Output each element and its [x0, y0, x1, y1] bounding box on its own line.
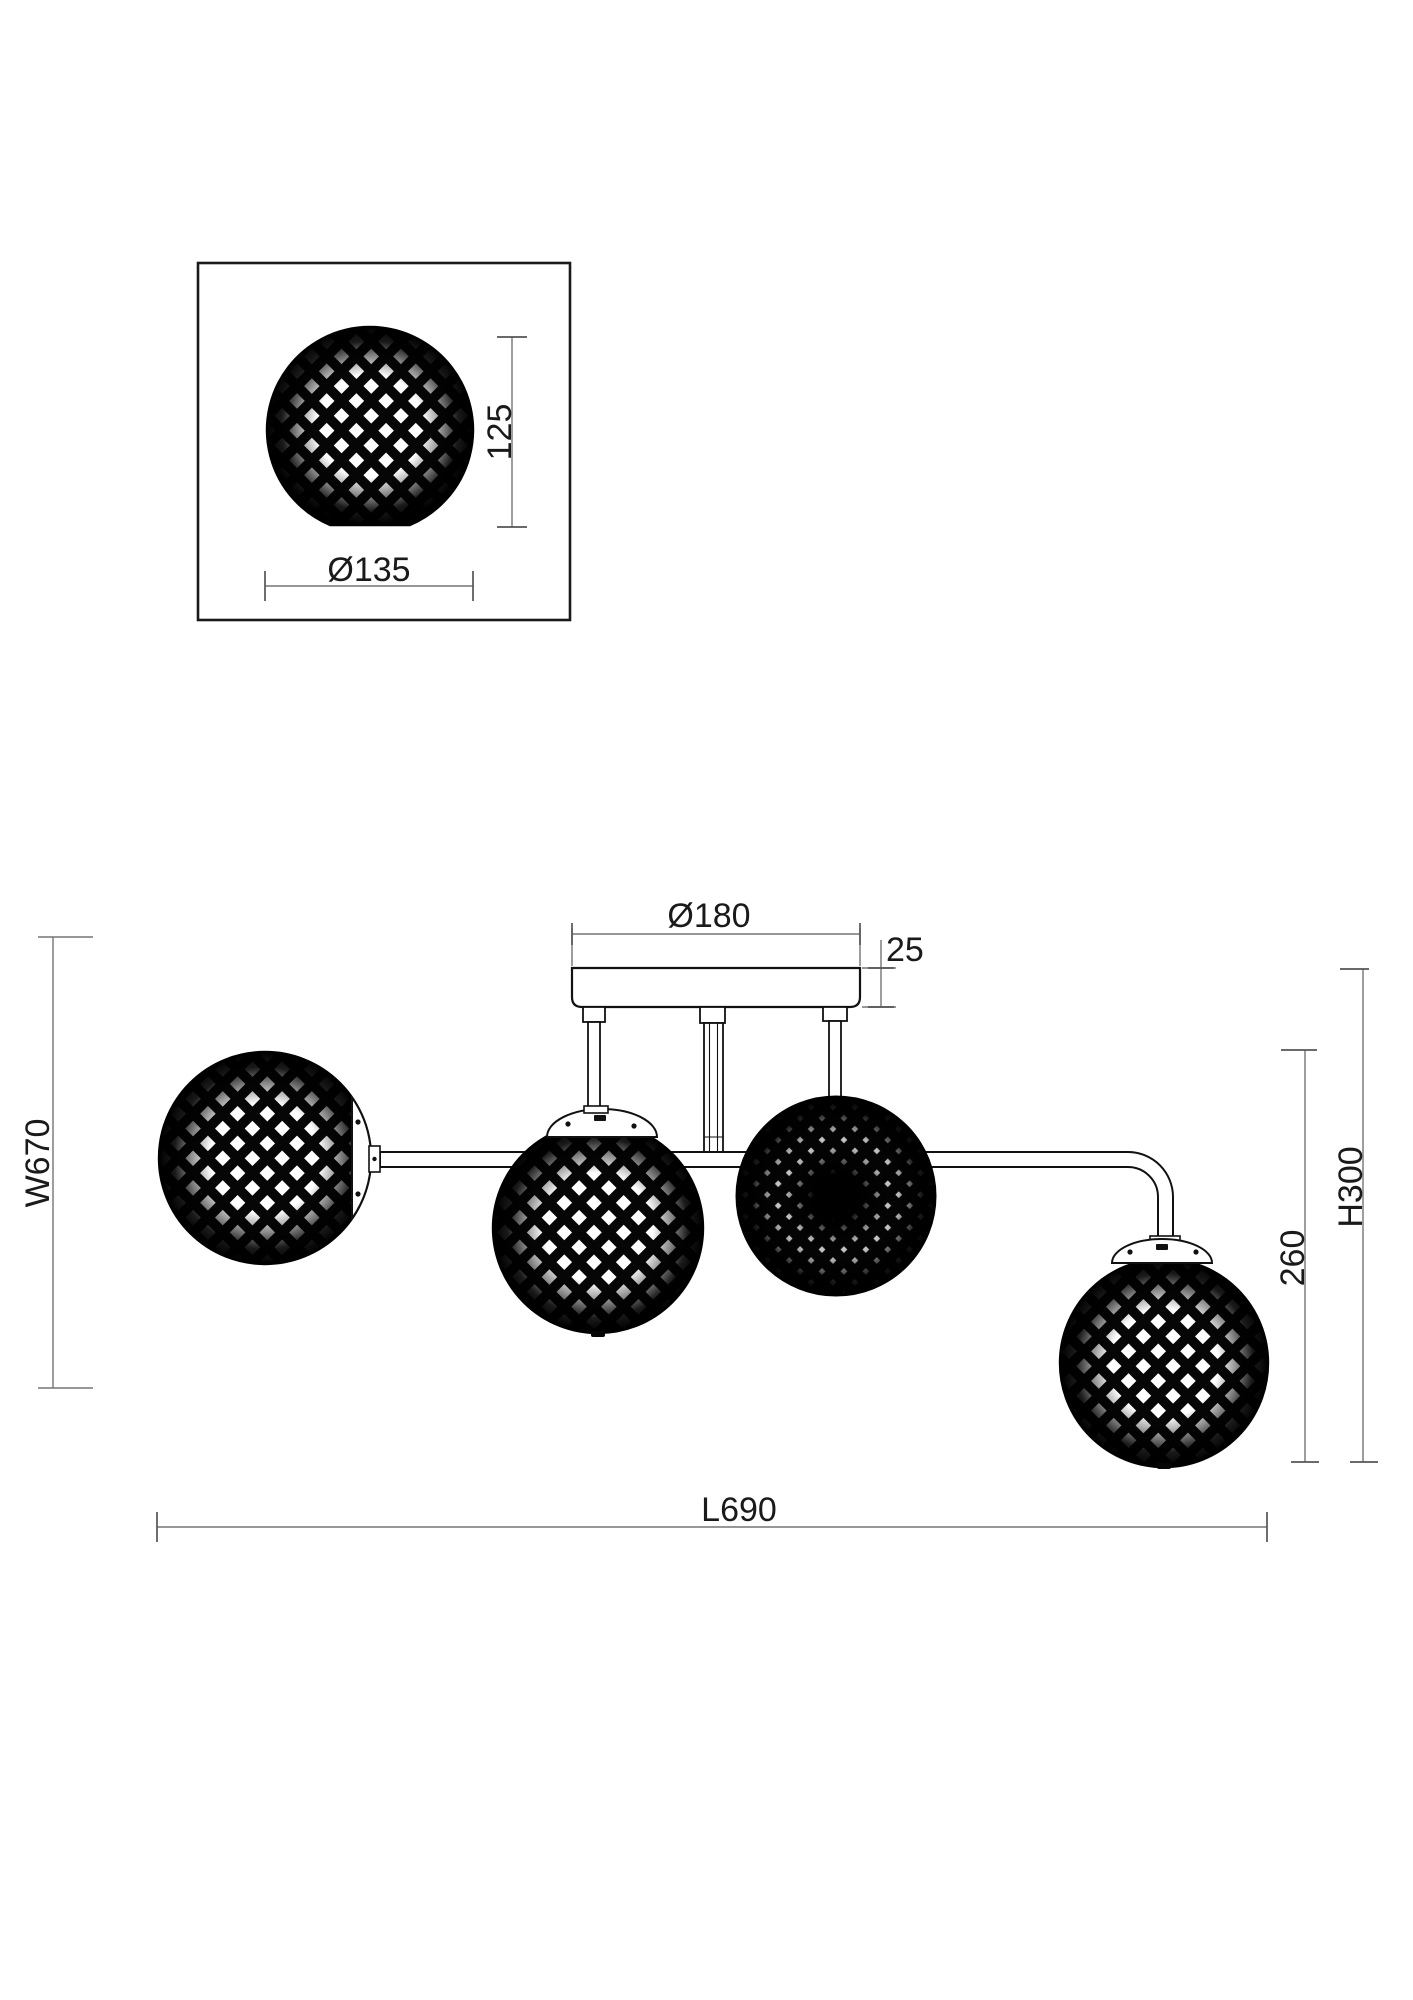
dim-body-drop-label: 260 [1274, 1230, 1312, 1287]
main-view: Ø180 25 W670 260 H300 [19, 897, 1378, 1542]
dim-height-label: H300 [1332, 1146, 1370, 1227]
stem-center [700, 1007, 725, 1153]
dim-width-label: W670 [19, 1119, 57, 1208]
shade-1 [159, 1052, 380, 1264]
technical-drawing: 125 Ø135 [0, 0, 1413, 2000]
dim-canopy-thickness-label: 25 [886, 931, 924, 969]
dim-length-label: L690 [701, 1491, 777, 1529]
shade-2 [493, 1106, 703, 1337]
drawing-sheet: 125 Ø135 [0, 0, 1413, 2000]
shade-3 [737, 1097, 935, 1295]
stem-left [583, 1007, 605, 1108]
dim-detail-height-label: 125 [481, 404, 519, 461]
dim-canopy-diameter-label: Ø180 [667, 897, 750, 935]
shade-4 [1060, 1236, 1268, 1469]
shade-1-cap [352, 1097, 371, 1218]
detail-view: 125 Ø135 [198, 263, 570, 620]
detail-shade [267, 327, 473, 525]
ceiling-canopy [572, 968, 860, 1007]
stem-right [823, 1007, 847, 1100]
dim-detail-diameter-label: Ø135 [327, 551, 410, 589]
